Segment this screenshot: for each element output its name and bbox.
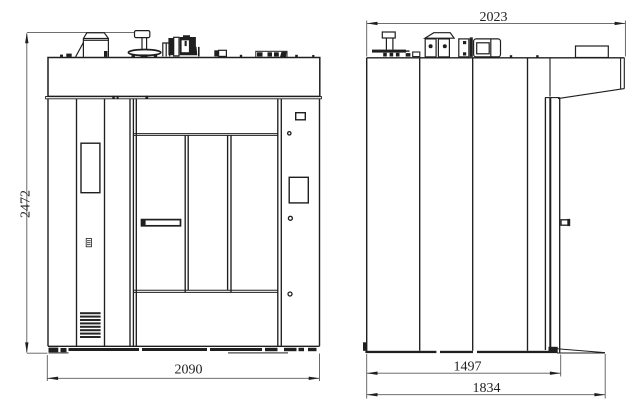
svg-text:2090: 2090 [175, 363, 203, 378]
svg-text:1834: 1834 [473, 381, 501, 396]
svg-text:2023: 2023 [480, 10, 508, 25]
svg-text:1497: 1497 [454, 360, 482, 375]
svg-text:2472: 2472 [19, 190, 34, 218]
